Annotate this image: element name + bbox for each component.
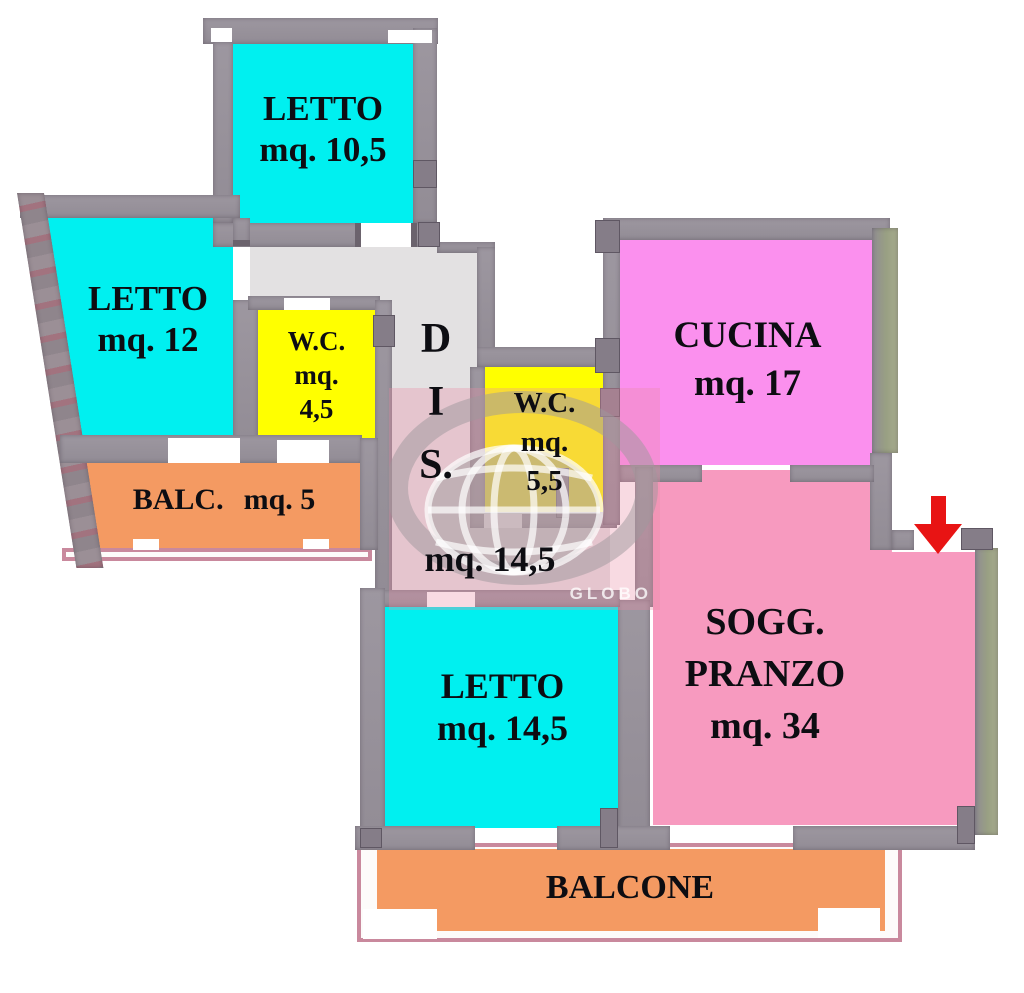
wall-pillar: [418, 222, 440, 247]
entrance-arrow: [931, 496, 946, 526]
door-opening: [284, 298, 330, 310]
label-letto-left: LETTO mq. 12: [58, 278, 238, 361]
wall: [790, 465, 874, 482]
room-area: mq.: [487, 423, 602, 462]
wall-notch: [388, 30, 432, 43]
label-balc-left: BALC. mq. 5: [90, 482, 358, 517]
door-jamb: [355, 223, 361, 247]
entrance-arrow-head: [914, 524, 962, 554]
wall: [413, 28, 437, 223]
label-wc-small: W.C. mq. 4,5: [258, 325, 375, 426]
door-jamb: [233, 240, 250, 246]
wall-pillar: [961, 528, 993, 550]
room-name: CUCINA: [630, 312, 865, 360]
wall: [793, 826, 975, 850]
wall: [20, 195, 240, 218]
label-soggiorno: SOGG. PRANZO mq. 34: [640, 596, 890, 752]
room-name: LETTO: [390, 665, 615, 707]
room-name: S.: [405, 434, 467, 497]
door-opening: [168, 438, 240, 463]
label-letto-top: LETTO mq. 10,5: [233, 88, 413, 171]
room-name: LETTO: [58, 278, 238, 319]
room-area: mq. 34: [640, 700, 890, 752]
room-area: mq. 12: [58, 319, 238, 360]
wall: [892, 530, 914, 550]
room-name: LETTO: [233, 88, 413, 129]
room-area: 5,5: [487, 462, 602, 501]
wall-pillar: [600, 808, 618, 848]
room-area: mq. 17: [630, 360, 865, 408]
balc-left-door-mark-b: [303, 539, 329, 549]
wall-pillar: [595, 338, 620, 373]
room-name: W.C.: [487, 384, 602, 423]
wall: [360, 588, 385, 850]
room-name: W.C.: [258, 325, 375, 359]
wall-notch: [211, 28, 232, 42]
room-area: mq. 14,5: [390, 707, 615, 749]
wall-pillar: [360, 828, 382, 848]
label-disimpegno-area: mq. 14,5: [395, 538, 585, 580]
room-name: PRANZO: [640, 648, 890, 700]
room-name: D: [405, 308, 467, 371]
room-name: SOGG.: [640, 596, 890, 648]
floor-plan: GLOBO LETTO mq. 10,5 LETTO mq. 12 W.C. m…: [0, 0, 1024, 993]
label-disimpegno: D I S.: [405, 308, 467, 497]
room-area: mq. 5: [244, 482, 316, 517]
wall-pillar: [595, 220, 620, 253]
wall-pillar: [373, 315, 395, 347]
window-opening: [277, 440, 329, 463]
outer-wall-right: [872, 228, 898, 453]
wall-pillar: [413, 160, 437, 188]
room-area: mq. 14,5: [395, 538, 585, 580]
room-area: 4,5: [258, 393, 375, 427]
room-name: BALC.: [133, 482, 224, 517]
room-area: mq.: [258, 359, 375, 393]
label-cucina: CUCINA mq. 17: [630, 312, 865, 408]
label-letto-bottom: LETTO mq. 14,5: [390, 665, 615, 750]
room-name: BALCONE: [420, 868, 840, 908]
balcone-step-left: [363, 909, 437, 939]
wall: [477, 247, 495, 355]
door-opening: [361, 223, 411, 247]
room-area: mq. 10,5: [233, 129, 413, 170]
label-wc-large: W.C. mq. 5,5: [487, 384, 602, 501]
balcone-step-right: [818, 908, 880, 938]
balc-left-railing: [62, 548, 372, 561]
label-balcone: BALCONE: [420, 868, 840, 908]
door-jamb: [411, 223, 417, 247]
room-name: I: [405, 371, 467, 434]
outer-wall-right: [975, 548, 998, 835]
wall: [603, 218, 890, 240]
wall-pillar: [957, 806, 975, 844]
wall: [360, 438, 378, 550]
balc-left-door-mark-a: [133, 539, 159, 550]
